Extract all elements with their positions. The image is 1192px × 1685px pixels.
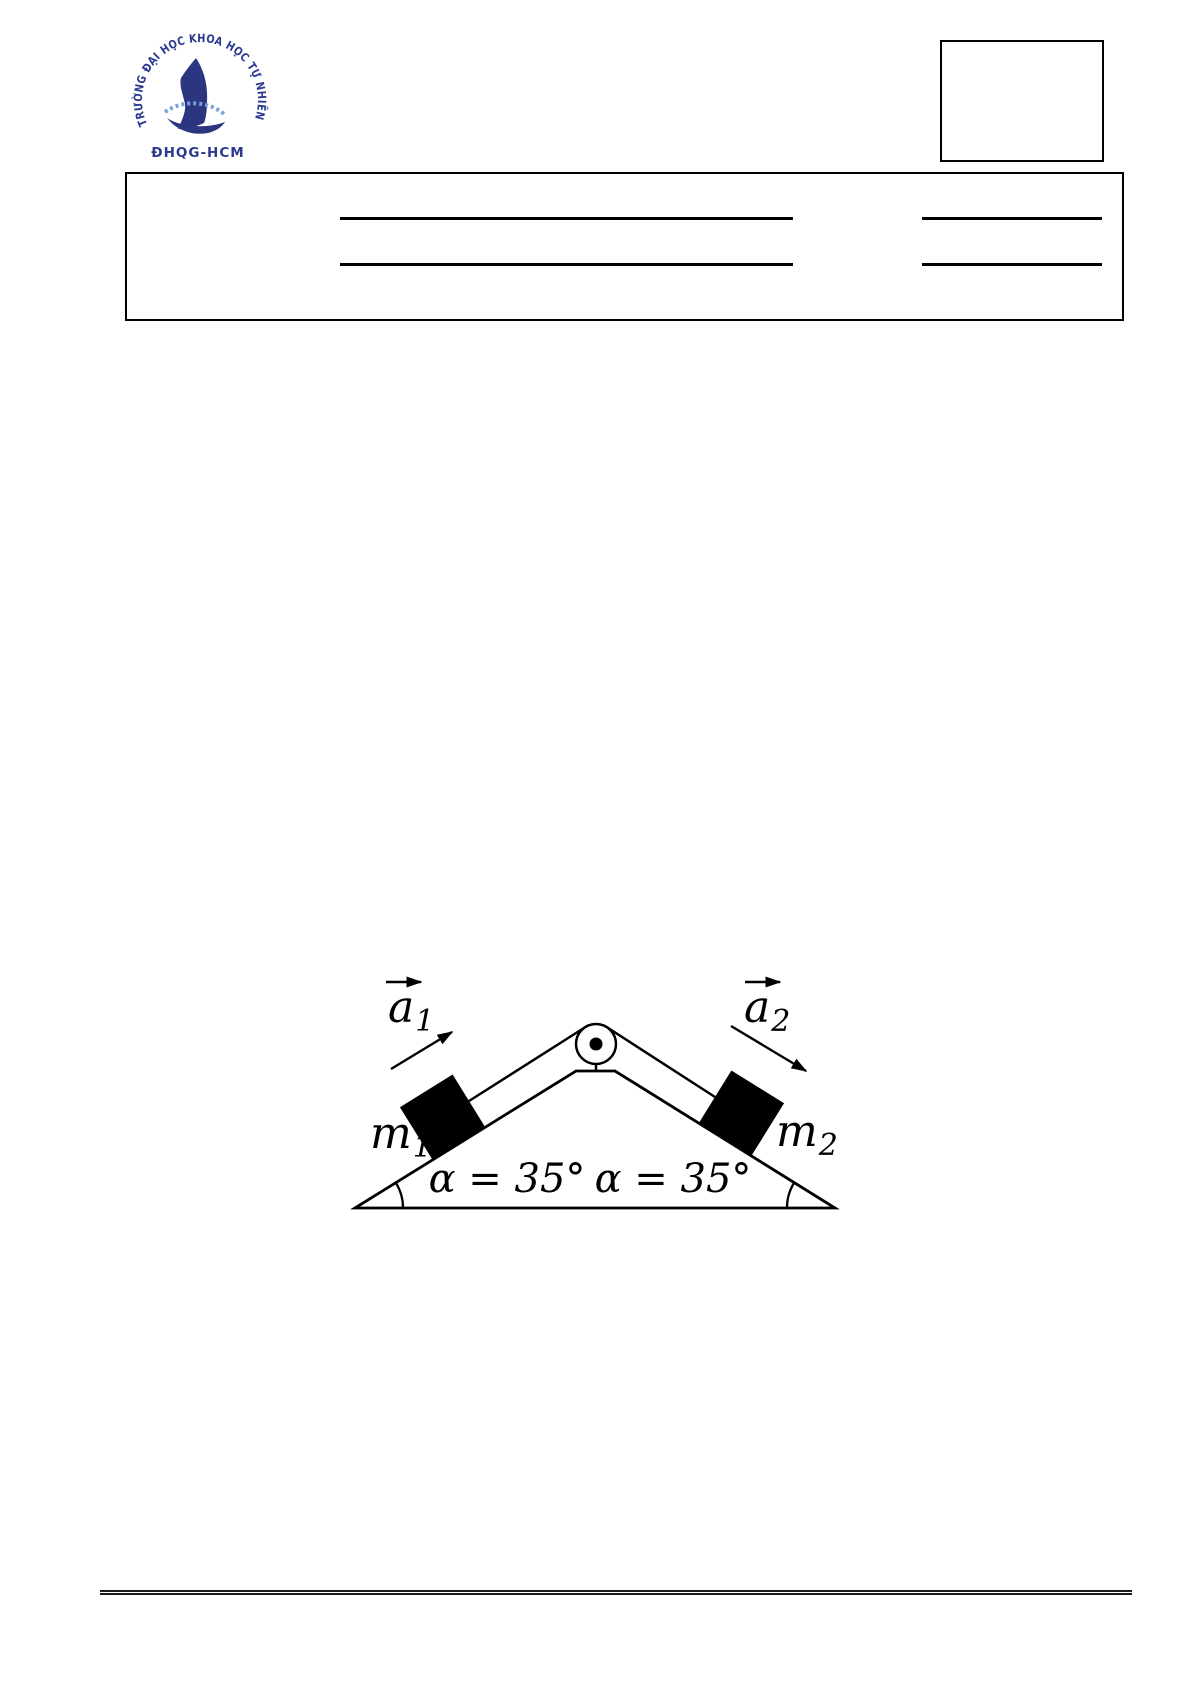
footer-divider-bottom-line <box>100 1593 1132 1595</box>
blank-line-right-2 <box>922 263 1102 266</box>
left-angle-label: α = 35° <box>429 1156 586 1202</box>
blank-line-left-1 <box>340 217 793 220</box>
university-logo: TRƯỜNG ĐẠI HỌC KHOA HỌC TỰ NHIÊN ĐHQG-HC… <box>112 30 284 166</box>
logo-sail-emblem <box>165 58 225 134</box>
pulley-hub <box>590 1038 603 1051</box>
header-info-box <box>125 172 1124 321</box>
top-right-empty-box <box>940 40 1104 162</box>
footer-divider-top-line <box>100 1590 1132 1592</box>
incline-pulley-diagram: a1 a2 m1 m2 α = 35° α = 35° <box>325 895 870 1240</box>
blank-line-right-1 <box>922 217 1102 220</box>
logo-subtitle: ĐHQG-HCM <box>151 145 244 161</box>
blank-line-left-2 <box>340 263 793 266</box>
a1-label: a1 <box>388 982 434 1039</box>
m2-label: m2 <box>776 1106 838 1163</box>
document-page: TRƯỜNG ĐẠI HỌC KHOA HỌC TỰ NHIÊN ĐHQG-HC… <box>0 0 1192 1685</box>
right-angle-label: α = 35° <box>595 1156 752 1202</box>
footer-divider <box>100 1590 1132 1595</box>
a2-label: a2 <box>744 982 790 1039</box>
